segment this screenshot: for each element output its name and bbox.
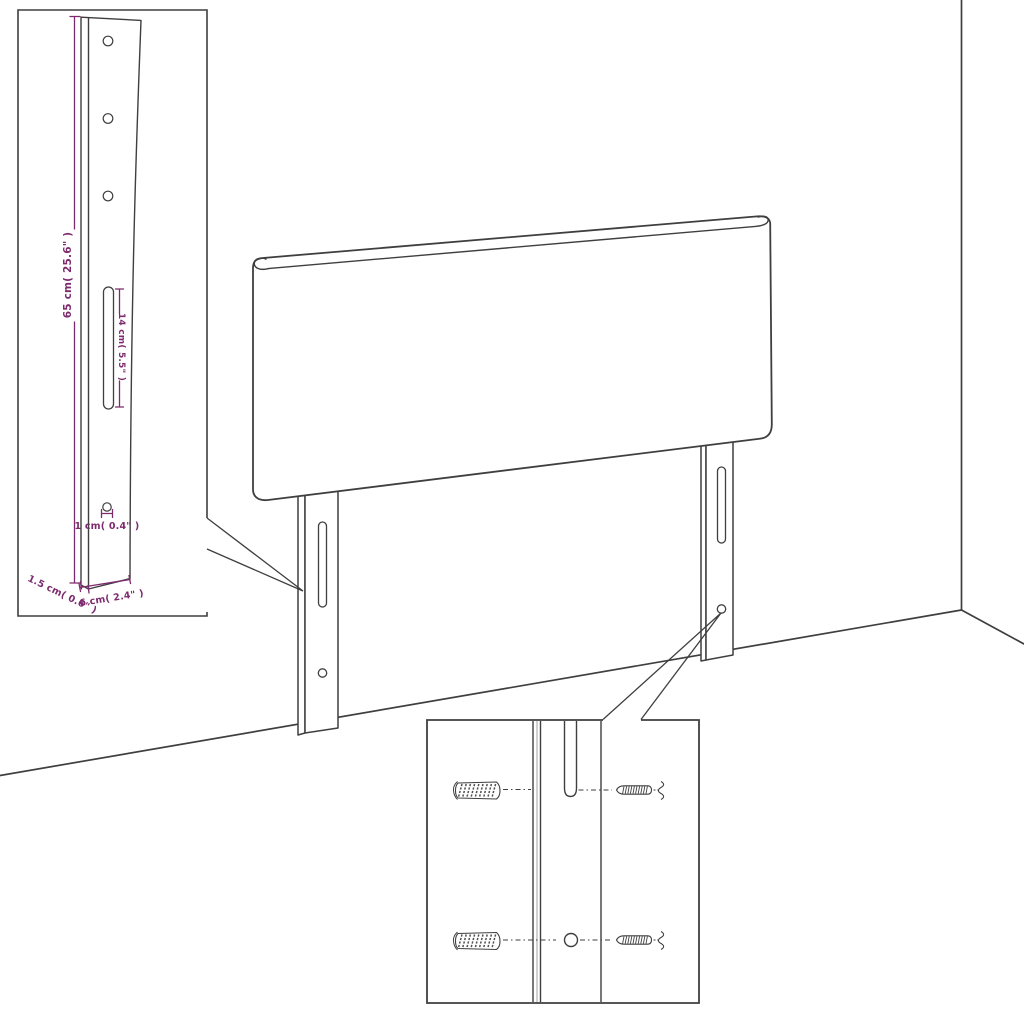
dimension-hole-diameter-label: 1 cm( 0.4" ) bbox=[75, 521, 140, 532]
left-leg-side-face bbox=[298, 485, 305, 735]
diagram-canvas: 65 cm( 25.6" ) 14 cm( 5.5" ) 1 cm( 0.4" … bbox=[0, 0, 1024, 1024]
headboard-diagram: 65 cm( 25.6" ) 14 cm( 5.5" ) 1 cm( 0.4" … bbox=[0, 0, 1024, 1024]
hardware-inset-fill bbox=[427, 720, 699, 1003]
hardware-inset-leader-lines bbox=[603, 613, 721, 720]
headboard-panel bbox=[253, 216, 772, 500]
detail-inset-leader-lines bbox=[207, 518, 303, 591]
dimension-slot-length-label: 14 cm( 5.5" ) bbox=[116, 313, 126, 381]
right-leg-front-face bbox=[706, 432, 733, 660]
hardware-inset bbox=[427, 613, 721, 1003]
left-leg bbox=[298, 481, 338, 735]
headboard-panel-outline bbox=[253, 216, 772, 500]
dimension-height-label: 65 cm( 25.6" ) bbox=[62, 232, 74, 319]
floor-line-right bbox=[962, 610, 1024, 644]
